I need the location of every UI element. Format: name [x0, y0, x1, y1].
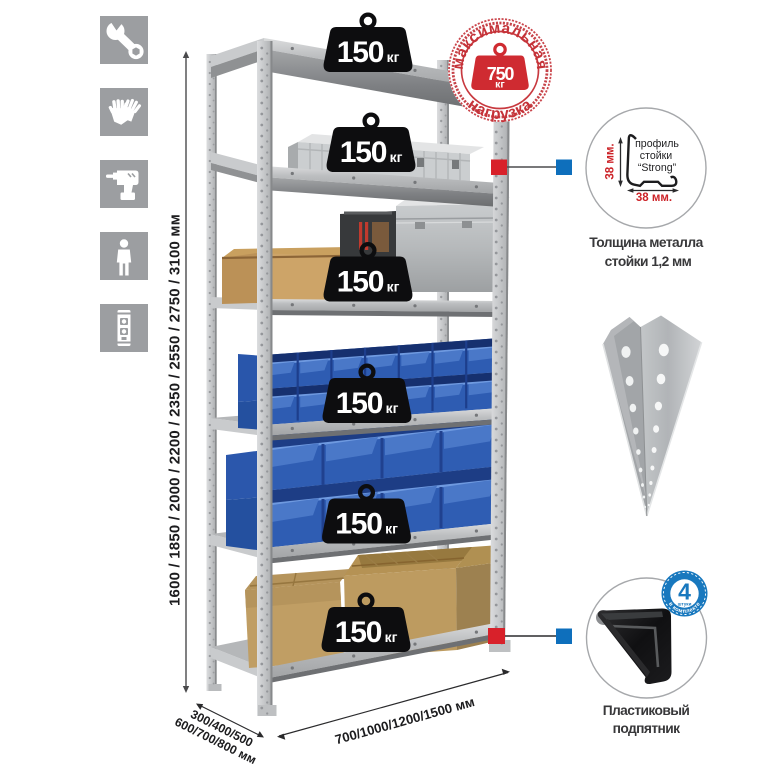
svg-text:1600 / 1850 / 2000 / 2200 / 23: 1600 / 1850 / 2000 / 2200 / 2350 / 2550 …	[167, 214, 184, 606]
svg-text:Толщина металла: Толщина металла	[589, 235, 703, 250]
svg-text:“Strong”: “Strong”	[638, 162, 677, 174]
svg-text:подпятник: подпятник	[613, 721, 680, 736]
svg-text:стойки 1,2 мм: стойки 1,2 мм	[605, 254, 692, 269]
svg-text:кг: кг	[495, 79, 505, 91]
svg-text:штуки: штуки	[678, 602, 692, 607]
svg-text:38 мм.: 38 мм.	[605, 143, 617, 179]
svg-text:стойки: стойки	[640, 150, 672, 162]
svg-text:38 мм.: 38 мм.	[636, 192, 672, 204]
svg-text:Пластиковый: Пластиковый	[603, 703, 690, 718]
svg-text:профиль: профиль	[635, 138, 679, 150]
